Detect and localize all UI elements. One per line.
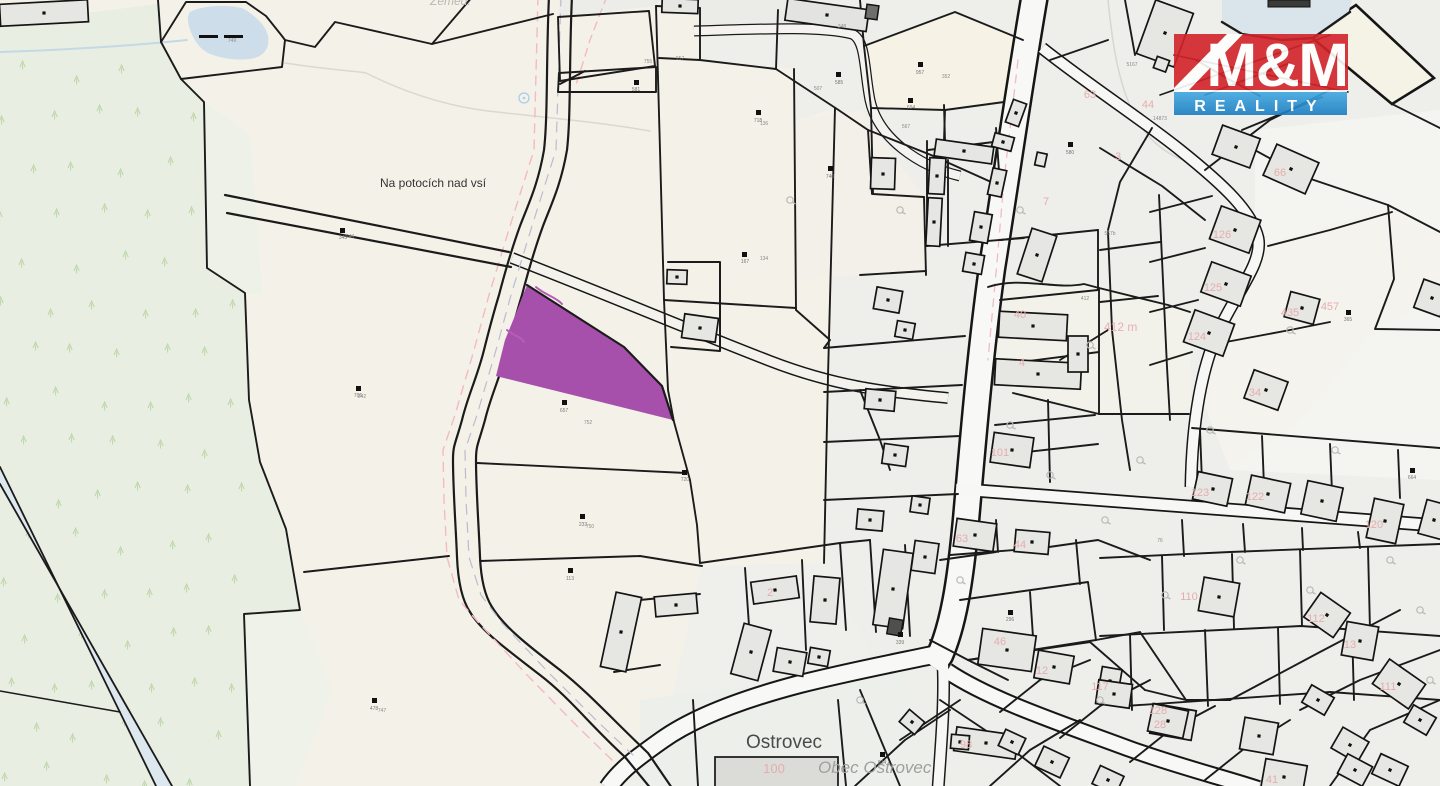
svg-text:46: 46 (994, 636, 1006, 648)
svg-text:752: 752 (584, 420, 593, 426)
svg-text:750: 750 (586, 524, 595, 530)
svg-text:123: 123 (1191, 487, 1209, 499)
svg-text:657: 657 (560, 408, 569, 414)
svg-text:128: 128 (1149, 705, 1167, 717)
svg-text:457: 457 (1321, 301, 1339, 313)
svg-text:580: 580 (1066, 150, 1075, 156)
svg-text:14873: 14873 (1153, 116, 1167, 122)
svg-text:100: 100 (763, 761, 785, 776)
svg-text:63: 63 (956, 533, 968, 545)
svg-text:7: 7 (1043, 196, 1049, 208)
svg-text:957: 957 (916, 70, 925, 76)
svg-text:126: 126 (1213, 229, 1231, 241)
svg-text:136: 136 (760, 121, 769, 127)
svg-text:585: 585 (835, 80, 844, 86)
svg-text:5167: 5167 (1126, 62, 1137, 68)
svg-text:339: 339 (896, 640, 905, 646)
svg-text:694: 694 (907, 105, 916, 111)
svg-text:296: 296 (1006, 617, 1015, 623)
svg-text:111: 111 (1380, 681, 1397, 693)
svg-text:Zeměd.: Zeměd. (429, 0, 471, 8)
svg-text:242: 242 (358, 394, 367, 400)
svg-text:348: 348 (838, 24, 847, 30)
svg-text:581: 581 (632, 87, 641, 93)
svg-text:101: 101 (991, 447, 1009, 459)
svg-text:124: 124 (1188, 331, 1206, 343)
svg-text:4: 4 (1019, 357, 1025, 369)
svg-text:747: 747 (378, 708, 387, 714)
svg-text:720: 720 (681, 477, 690, 483)
svg-text:44: 44 (1014, 539, 1026, 551)
svg-text:M&M: M&M (1206, 31, 1347, 99)
svg-text:112: 112 (1307, 613, 1325, 625)
svg-text:435: 435 (1281, 307, 1299, 319)
svg-text:567b: 567b (1104, 231, 1115, 237)
svg-text:98: 98 (960, 739, 972, 751)
svg-text:2: 2 (767, 587, 773, 599)
svg-text:28: 28 (1154, 719, 1166, 731)
svg-text:125: 125 (1204, 282, 1222, 294)
svg-text:Na potocích nad vsí: Na potocích nad vsí (380, 176, 487, 190)
svg-text:957: 957 (676, 56, 685, 62)
svg-text:34: 34 (1249, 387, 1261, 399)
svg-text:44: 44 (1142, 99, 1154, 111)
svg-text:167: 167 (741, 259, 750, 265)
svg-text:755: 755 (644, 59, 653, 65)
svg-text:244: 244 (346, 234, 355, 240)
svg-text:3: 3 (1115, 151, 1121, 163)
svg-text:REALITY: REALITY (1194, 98, 1325, 115)
svg-text:41: 41 (1266, 774, 1278, 786)
svg-text:365: 365 (1344, 317, 1353, 323)
svg-text:412 m: 412 m (1104, 320, 1137, 334)
svg-text:66: 66 (1274, 167, 1286, 179)
svg-text:352: 352 (942, 74, 951, 80)
svg-text:507: 507 (814, 86, 823, 92)
svg-text:113: 113 (566, 576, 574, 582)
svg-text:122: 122 (1246, 491, 1264, 503)
svg-text:12: 12 (1036, 665, 1048, 677)
svg-text:63: 63 (1084, 89, 1096, 101)
svg-text:117: 117 (1091, 681, 1109, 693)
svg-text:567: 567 (902, 124, 911, 130)
svg-text:120: 120 (1365, 519, 1383, 531)
svg-text:740: 740 (826, 174, 835, 180)
svg-text:40: 40 (1014, 309, 1026, 321)
svg-text:76: 76 (1157, 538, 1163, 544)
svg-text:Ostrovec: Ostrovec (746, 732, 822, 753)
svg-text:664: 664 (1408, 475, 1417, 481)
svg-text:Obec Ostrovec: Obec Ostrovec (818, 758, 932, 777)
svg-text:749: 749 (228, 38, 237, 44)
svg-text:13: 13 (1344, 639, 1356, 651)
svg-text:134: 134 (760, 256, 769, 262)
svg-text:412: 412 (1081, 296, 1090, 302)
svg-text:110: 110 (1180, 591, 1198, 603)
